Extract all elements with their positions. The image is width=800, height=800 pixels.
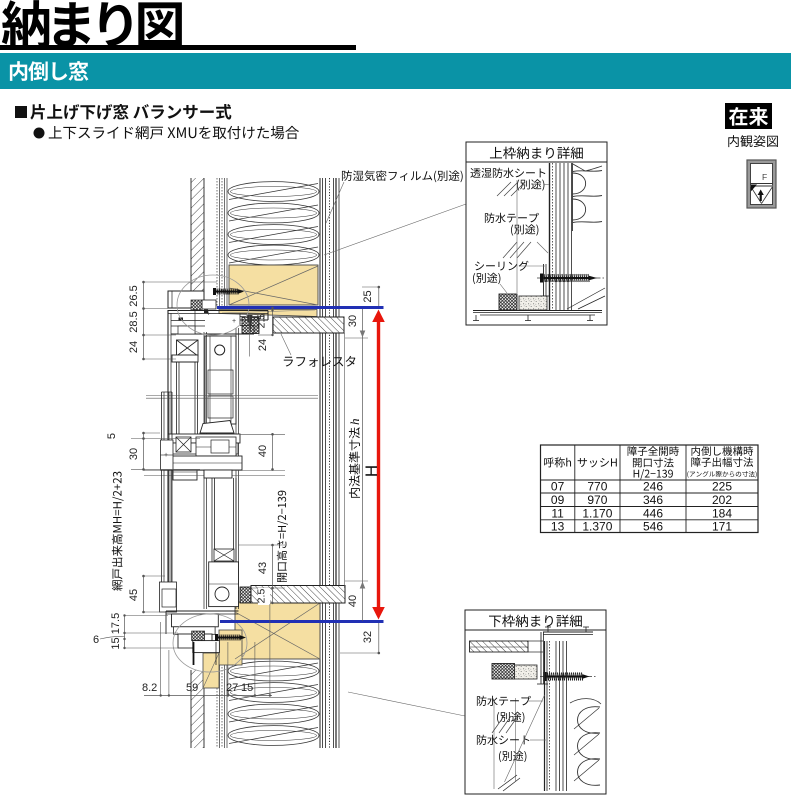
svg-text:171: 171 (712, 519, 732, 533)
svg-text:770: 770 (587, 480, 607, 494)
svg-text:1.170: 1.170 (582, 506, 612, 520)
svg-text:40: 40 (257, 445, 269, 457)
svg-text:+: + (164, 452, 168, 459)
svg-text:30: 30 (128, 448, 140, 460)
svg-text:H: H (362, 465, 381, 477)
svg-text:1.370: 1.370 (582, 519, 612, 533)
svg-text:26.5: 26.5 (128, 285, 140, 306)
svg-text:09: 09 (551, 493, 565, 507)
svg-text:59: 59 (186, 682, 198, 694)
svg-text:h: h (347, 419, 362, 426)
svg-text:28.5: 28.5 (128, 311, 140, 332)
svg-text:546: 546 (643, 519, 663, 533)
svg-text:40: 40 (347, 595, 359, 607)
svg-text:17.5: 17.5 (110, 613, 122, 634)
svg-text:25: 25 (362, 290, 374, 302)
svg-text:07: 07 (551, 480, 565, 494)
svg-text:27: 27 (226, 682, 238, 694)
svg-text:15: 15 (110, 637, 122, 649)
svg-text:24: 24 (128, 341, 140, 353)
svg-text:246: 246 (643, 480, 663, 494)
svg-text:30: 30 (347, 315, 359, 327)
svg-text:F: F (762, 172, 767, 182)
svg-text:32: 32 (362, 631, 374, 643)
svg-text:8.2: 8.2 (142, 682, 157, 694)
svg-text:970: 970 (587, 493, 607, 507)
svg-text:+: + (232, 318, 236, 325)
svg-text:6: 6 (93, 634, 99, 646)
svg-text:11: 11 (551, 506, 564, 520)
svg-text:184: 184 (712, 506, 732, 520)
svg-text:43: 43 (257, 562, 269, 574)
svg-text:13: 13 (551, 519, 565, 533)
svg-text:5: 5 (106, 433, 118, 439)
svg-text:346: 346 (643, 493, 663, 507)
svg-text:24: 24 (257, 339, 269, 351)
svg-text:+: + (206, 311, 210, 318)
svg-text:2.5: 2.5 (256, 589, 268, 604)
svg-text:202: 202 (712, 493, 732, 507)
svg-text:2.5: 2.5 (256, 314, 268, 329)
svg-text:45: 45 (128, 589, 140, 601)
svg-text:225: 225 (712, 480, 732, 494)
svg-text:15: 15 (241, 682, 253, 694)
svg-text:446: 446 (643, 506, 663, 520)
